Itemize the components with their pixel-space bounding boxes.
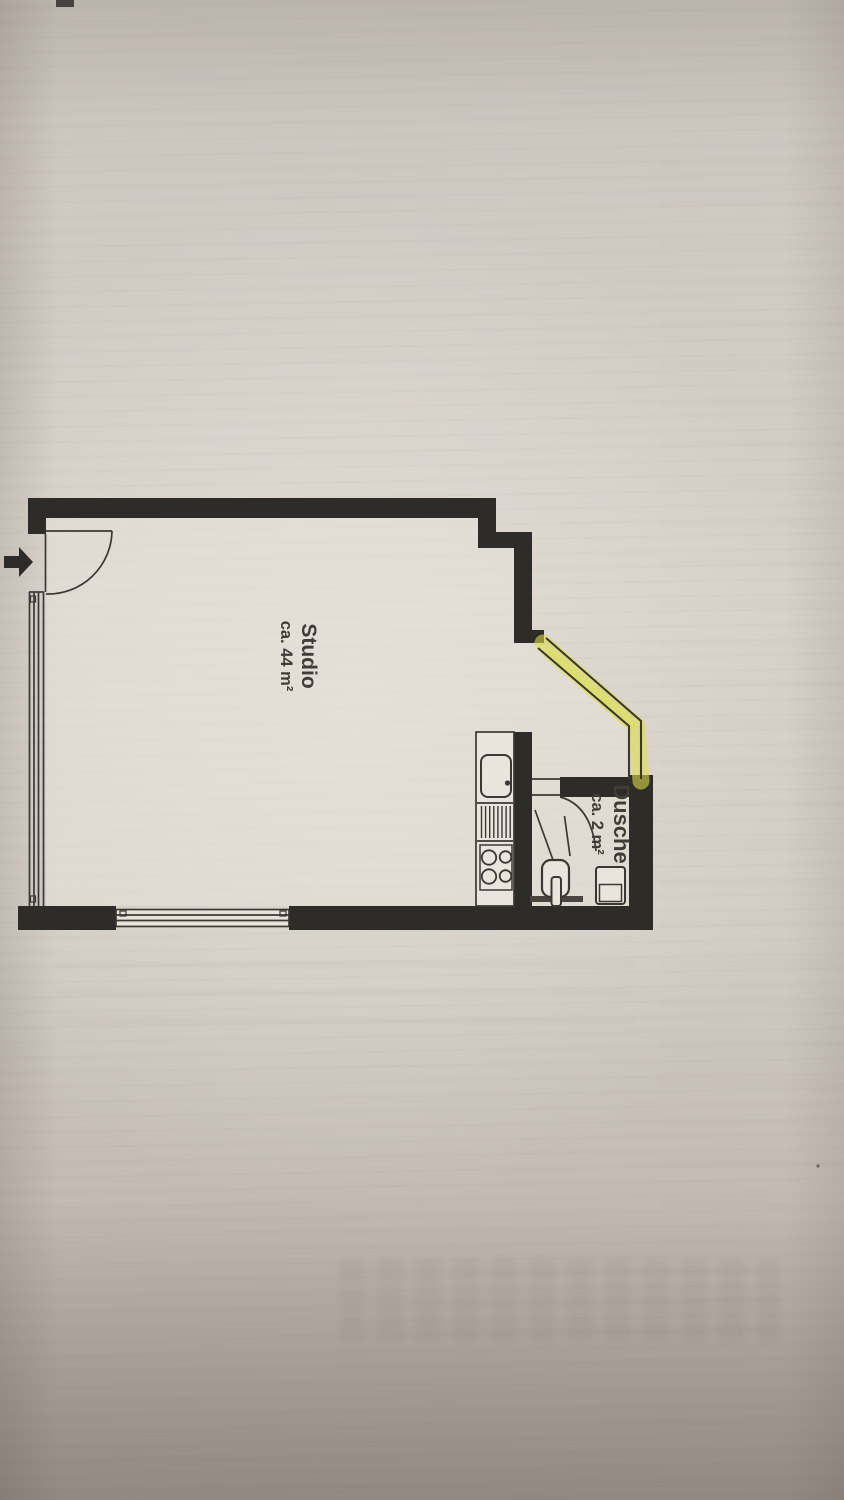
wall-left-top bbox=[28, 516, 46, 534]
kitchen-faucet bbox=[505, 780, 510, 785]
floor-plan-drawing: Studio ca. 44 m² Dusche ca. 2 m² bbox=[0, 0, 844, 1500]
wall-jog-lower bbox=[514, 546, 532, 632]
toilet-stem bbox=[552, 877, 562, 906]
wall-top bbox=[28, 498, 496, 518]
kitchen-sink bbox=[481, 755, 511, 797]
window-left bbox=[29, 592, 44, 906]
photo-edge-artifact bbox=[56, 0, 74, 7]
photo-paper-background: Studio ca. 44 m² Dusche ca. 2 m² bbox=[0, 0, 844, 1500]
kitchenette bbox=[476, 732, 514, 906]
paper-speck bbox=[816, 1164, 819, 1167]
wall-kitchen-divider bbox=[514, 732, 532, 906]
window-bottom bbox=[116, 908, 289, 928]
washbasin bbox=[596, 867, 625, 904]
apartment-interior bbox=[46, 518, 629, 906]
wall-bottom-right bbox=[289, 906, 653, 930]
shower-room-label-group: Dusche ca. 2 m² bbox=[588, 784, 634, 863]
shower-room-area-label: ca. 2 m² bbox=[588, 793, 606, 855]
studio-label-group: Studio ca. 44 m² bbox=[277, 621, 320, 692]
shower-room-label: Dusche bbox=[609, 784, 634, 863]
entrance-arrow-icon bbox=[4, 547, 33, 577]
wall-bottom-left bbox=[18, 906, 116, 930]
studio-label: Studio bbox=[297, 623, 320, 688]
wall-jog-step bbox=[478, 532, 532, 548]
wall-jog-vertical bbox=[478, 516, 496, 534]
studio-area-label: ca. 44 m² bbox=[277, 621, 295, 692]
